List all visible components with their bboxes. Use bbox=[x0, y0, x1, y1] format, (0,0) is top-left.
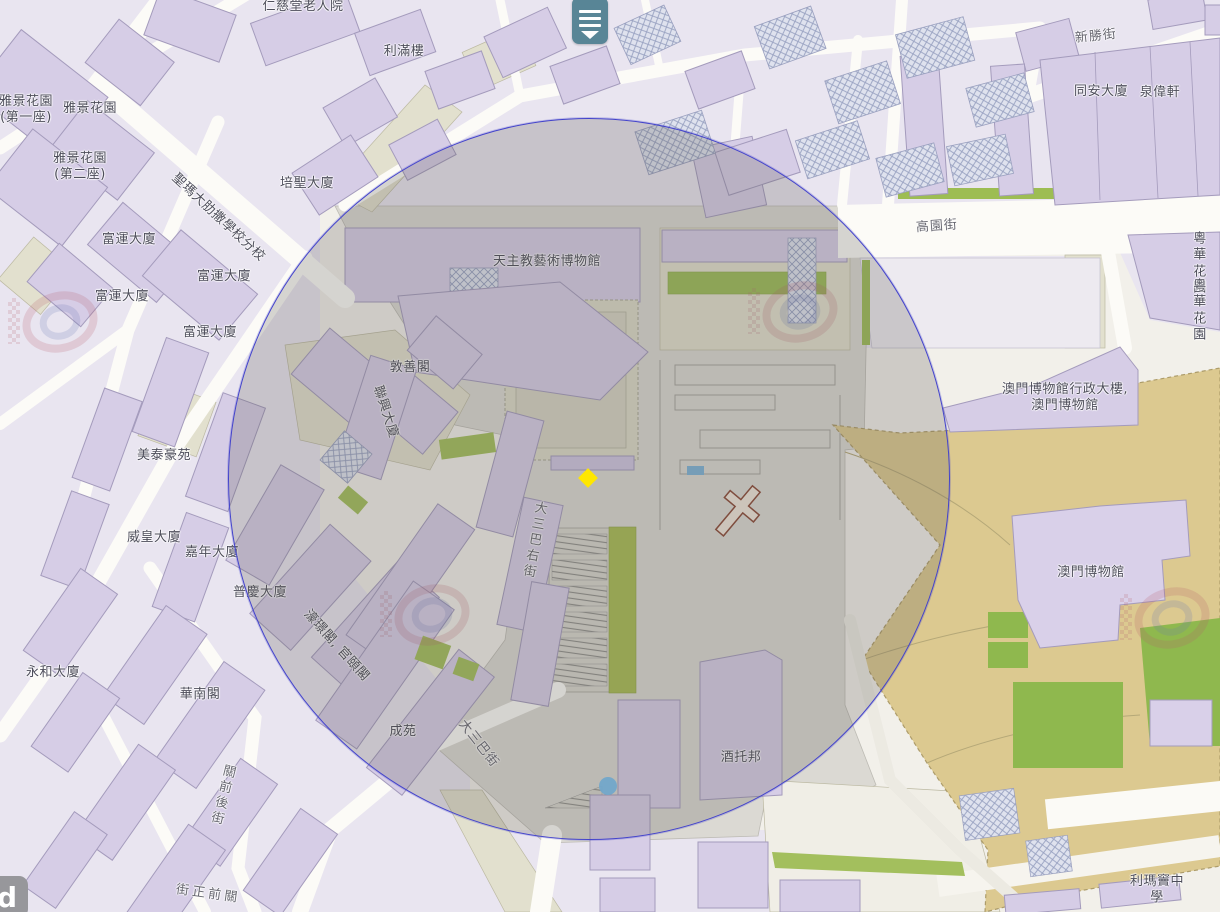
poi-marker-icon[interactable] bbox=[572, 0, 608, 44]
map-canvas[interactable] bbox=[0, 0, 1220, 912]
map-viewport[interactable]: 雅景花園 (第一座)雅景花園雅景花園 (第二座)富運大廈富運大廈富運大廈富運大廈… bbox=[0, 0, 1220, 912]
poi-dot-marker[interactable] bbox=[599, 777, 617, 795]
poi-icon-bar bbox=[579, 17, 601, 20]
poi-icon-bar bbox=[579, 10, 601, 13]
poi-icon-chevron bbox=[581, 31, 599, 39]
poi-icon-bar bbox=[579, 24, 601, 27]
attribution-logo-partial: d bbox=[0, 876, 28, 912]
